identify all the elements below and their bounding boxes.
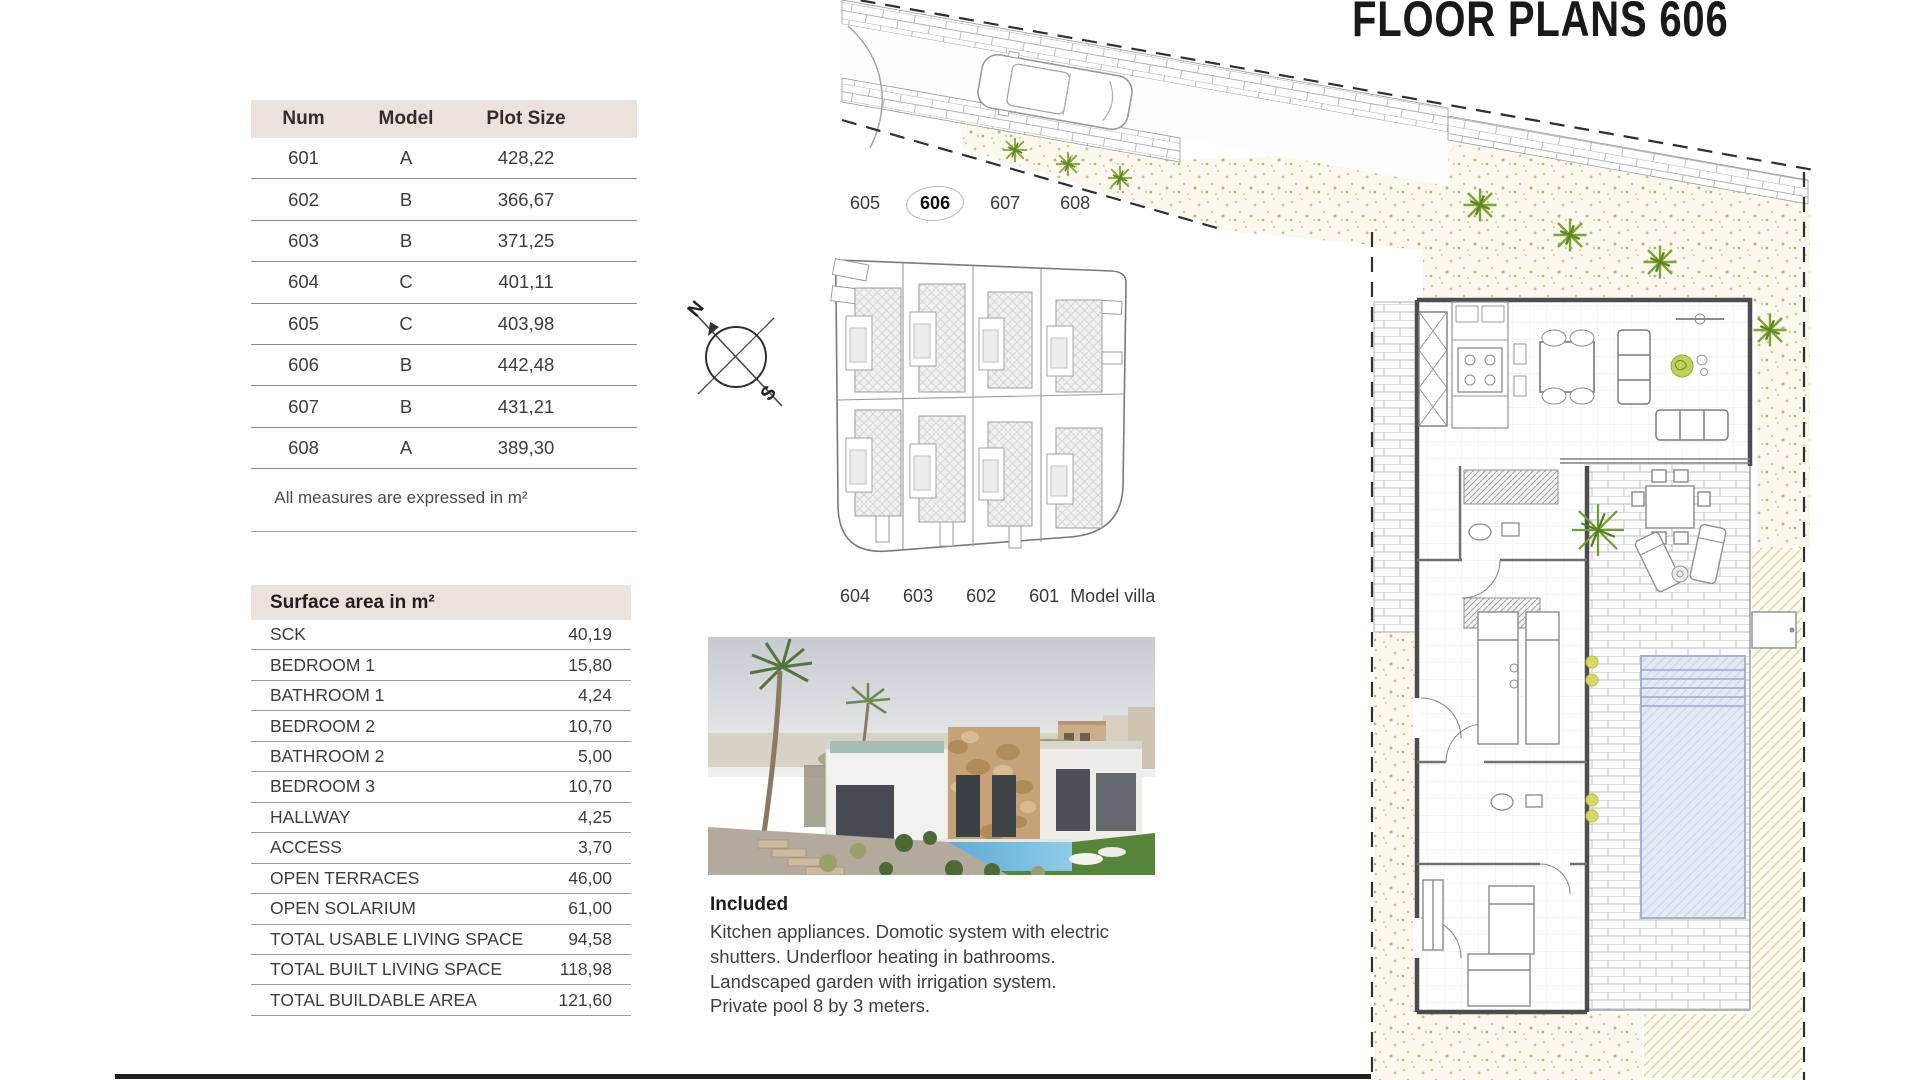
plot-size: 431,21 bbox=[456, 396, 596, 418]
room-label: BATHROOM 2 bbox=[270, 746, 384, 767]
room-label: OPEN TERRACES bbox=[270, 868, 419, 889]
unit-number: 606 bbox=[251, 354, 356, 376]
unit-number: 605 bbox=[251, 313, 356, 335]
plot-size: 403,98 bbox=[456, 313, 596, 335]
room-area: 94,58 bbox=[568, 929, 612, 950]
column-header: Num bbox=[251, 108, 356, 130]
unit-number: 603 bbox=[251, 230, 356, 252]
table-row: TOTAL BUILT LIVING SPACE 118,98 bbox=[251, 955, 631, 985]
stove bbox=[1458, 348, 1502, 392]
table-row: TOTAL BUILDABLE AREA 121,60 bbox=[251, 985, 631, 1015]
room-label: BEDROOM 1 bbox=[270, 655, 375, 676]
room-area: 46,00 bbox=[568, 868, 612, 889]
room-label: TOTAL BUILT LIVING SPACE bbox=[270, 959, 502, 980]
unit-model: B bbox=[356, 230, 456, 252]
unit-model: C bbox=[356, 271, 456, 293]
room-label: BEDROOM 2 bbox=[270, 716, 375, 737]
table-row: BEDROOM 3 10,70 bbox=[251, 772, 631, 802]
table-row: TOTAL USABLE LIVING SPACE 94,58 bbox=[251, 925, 631, 955]
unit-model: B bbox=[356, 354, 456, 376]
plot-size: 371,25 bbox=[456, 230, 596, 252]
unit-model: A bbox=[356, 437, 456, 459]
plot-size: 389,30 bbox=[456, 437, 596, 459]
room-area: 40,19 bbox=[568, 624, 612, 645]
unit-number: 601 bbox=[251, 147, 356, 169]
room-area: 61,00 bbox=[568, 898, 612, 919]
compass-north-label: N bbox=[684, 297, 709, 321]
room-area: 10,70 bbox=[568, 776, 612, 797]
palm-plant bbox=[1572, 504, 1624, 556]
page-edge-rule bbox=[115, 1074, 1371, 1079]
room-label: ACCESS bbox=[270, 837, 342, 858]
table-row: 602 B 366,67 bbox=[251, 179, 637, 220]
compass-icon: N S bbox=[676, 296, 796, 416]
table-row: 601 A 428,22 bbox=[251, 138, 637, 179]
table-row: 605 C 403,98 bbox=[251, 304, 637, 345]
unit-number: 607 bbox=[251, 396, 356, 418]
surface-table-title: Surface area in m² bbox=[251, 585, 631, 620]
room-area: 4,25 bbox=[578, 807, 612, 828]
room-label: TOTAL USABLE LIVING SPACE bbox=[270, 929, 523, 950]
table-row: HALLWAY 4,25 bbox=[251, 803, 631, 833]
plot-size: 428,22 bbox=[456, 147, 596, 169]
table-row: 607 B 431,21 bbox=[251, 386, 637, 427]
table-row: 603 B 371,25 bbox=[251, 221, 637, 262]
room-area: 10,70 bbox=[568, 716, 612, 737]
unit-model: B bbox=[356, 396, 456, 418]
room-area: 4,24 bbox=[578, 685, 612, 706]
floor-plan-drawing bbox=[830, 0, 1920, 1080]
garden-band bbox=[1374, 1014, 1642, 1080]
garden-strip bbox=[1374, 632, 1418, 1014]
plot-table-header: NumModelPlot Size bbox=[251, 100, 637, 138]
plot-size: 442,48 bbox=[456, 354, 596, 376]
unit-number: 602 bbox=[251, 189, 356, 211]
room-label: HALLWAY bbox=[270, 807, 350, 828]
plot-table: 601 A 428,22 602 B 366,67 603 B 371,25 6… bbox=[251, 138, 637, 469]
room-area: 3,70 bbox=[578, 837, 612, 858]
table-row: BEDROOM 1 15,80 bbox=[251, 650, 631, 680]
unit-model: A bbox=[356, 147, 456, 169]
table-row: 608 A 389,30 bbox=[251, 428, 637, 469]
room-label: BEDROOM 3 bbox=[270, 776, 375, 797]
unit-model: B bbox=[356, 189, 456, 211]
pool bbox=[1641, 656, 1745, 918]
villa-floor-plan bbox=[1413, 300, 1796, 1012]
table-row: 604 C 401,11 bbox=[251, 262, 637, 303]
table-row: BEDROOM 2 10,70 bbox=[251, 711, 631, 741]
table-row: OPEN TERRACES 46,00 bbox=[251, 864, 631, 894]
column-header: Model bbox=[356, 108, 456, 130]
unit-number: 604 bbox=[251, 271, 356, 293]
room-label: OPEN SOLARIUM bbox=[270, 898, 416, 919]
room-area: 121,60 bbox=[558, 990, 612, 1011]
divider-rule bbox=[251, 531, 637, 532]
table-row: OPEN SOLARIUM 61,00 bbox=[251, 894, 631, 924]
room-area: 15,80 bbox=[568, 655, 612, 676]
room-area: 118,98 bbox=[560, 959, 612, 980]
table-row: SCK 40,19 bbox=[251, 620, 631, 650]
unit-number: 608 bbox=[251, 437, 356, 459]
stairs bbox=[1464, 470, 1558, 504]
room-label: BATHROOM 1 bbox=[270, 685, 384, 706]
table-row: BATHROOM 2 5,00 bbox=[251, 742, 631, 772]
unit-model: C bbox=[356, 313, 456, 335]
table-row: BATHROOM 1 4,24 bbox=[251, 681, 631, 711]
garden-wall bbox=[1374, 302, 1418, 632]
measures-note: All measures are expressed in m² bbox=[251, 488, 551, 508]
plot-size: 366,67 bbox=[456, 189, 596, 211]
table-row: 606 B 442,48 bbox=[251, 345, 637, 386]
pool-equipment-box bbox=[1752, 612, 1796, 648]
table-row: ACCESS 3,70 bbox=[251, 833, 631, 863]
room-area: 5,00 bbox=[578, 746, 612, 767]
column-header: Plot Size bbox=[456, 108, 596, 130]
plot-size: 401,11 bbox=[456, 271, 596, 293]
brochure-page: NumModelPlot Size 601 A 428,22 602 B 366… bbox=[0, 0, 1920, 1080]
plant-dish-icon bbox=[1671, 355, 1693, 377]
room-label: SCK bbox=[270, 624, 306, 645]
surface-table: SCK 40,19 BEDROOM 1 15,80 BATHROOM 1 4,2… bbox=[251, 620, 631, 1016]
room-label: TOTAL BUILDABLE AREA bbox=[270, 990, 477, 1011]
